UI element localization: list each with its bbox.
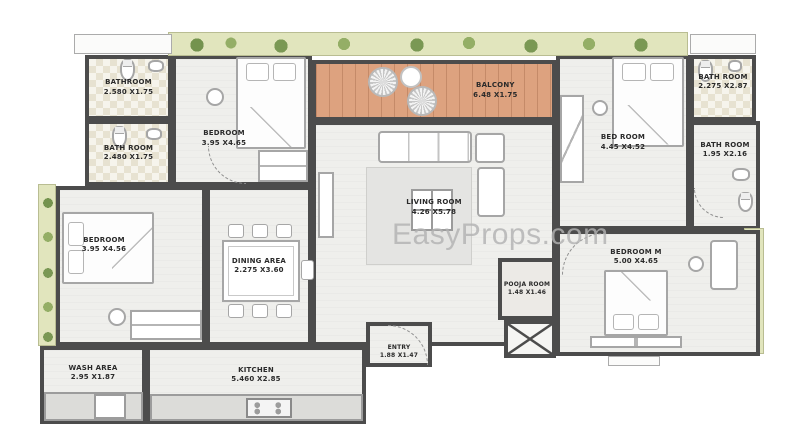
room-name: BATHROOM — [105, 78, 152, 87]
rattan-chair-icon — [368, 67, 398, 97]
room-label: BATHROOM 2.580 X1.75 — [89, 59, 168, 116]
room-balcony: BALCONY 6.48 X1.75 — [312, 60, 556, 121]
room-wash-area: WASH AREA 2.95 X1.87 — [40, 346, 146, 424]
room-name: WASH AREA — [69, 364, 118, 373]
room-label: KITCHEN 5.460 X2.85 — [150, 350, 362, 420]
ledge-bottom-right — [608, 356, 660, 366]
armchair-icon — [710, 240, 738, 290]
room-dims: 4.26 X5.78 — [412, 208, 456, 217]
room-dims: 2.580 X1.75 — [104, 88, 153, 97]
room-label: BED ROOM 4.45 X4.52 — [560, 59, 686, 226]
room-label: WASH AREA 2.95 X1.87 — [44, 350, 142, 420]
ledge-top-left — [74, 34, 172, 54]
room-dims: 2.95 X1.87 — [71, 373, 115, 382]
room-name: BALCONY — [476, 81, 515, 90]
room-dims: 3.95 X4.56 — [82, 245, 126, 254]
room-label: BATH ROOM 2.275 X2.87 — [694, 59, 752, 117]
room-label: BALCONY 6.48 X1.75 — [439, 64, 552, 117]
planter-strip-top — [168, 32, 688, 56]
room-name: BATH ROOM — [104, 144, 153, 153]
room-label: BEDROOM 3.95 X4.65 — [176, 59, 308, 182]
room-bathroom-4: BATH ROOM 1.95 X2.16 — [690, 121, 760, 230]
room-name: BATH ROOM — [700, 141, 749, 150]
room-dims: 5.00 X4.65 — [614, 257, 658, 266]
room-name: BEDROOM — [203, 129, 245, 138]
room-dims: 1.95 X2.16 — [703, 150, 747, 159]
planter-strip-left — [38, 184, 56, 346]
ledge-top-right — [690, 34, 756, 54]
room-bedroom-2: BED ROOM 4.45 X4.52 — [556, 55, 690, 230]
room-label: BEDROOM 3.95 X4.56 — [60, 190, 202, 342]
room-dining: DINING AREA 2.275 X3.60 — [206, 186, 312, 346]
bed-icon — [604, 270, 668, 336]
room-label: BATH ROOM 2.480 X1.75 — [89, 124, 168, 182]
rattan-chair-icon — [407, 86, 437, 116]
stool-icon — [688, 256, 704, 272]
room-dims: 4.45 X4.52 — [601, 143, 645, 152]
room-dims: 2.275 X3.60 — [234, 266, 283, 275]
room-name: LIVING ROOM — [406, 198, 462, 207]
room-dims: 2.275 X2.87 — [698, 82, 747, 91]
room-name: KITCHEN — [238, 366, 274, 375]
floor-plan: BATHROOM 2.580 X1.75 BATH ROOM 2.480 X1.… — [0, 0, 800, 448]
room-bathroom-2: BATH ROOM 2.480 X1.75 — [85, 120, 172, 186]
room-label: BATH ROOM 1.95 X2.16 — [694, 125, 756, 226]
watermark: EasyProps.com — [392, 218, 609, 252]
room-name: BATH ROOM — [698, 73, 747, 82]
room-dims: 3.95 X4.65 — [202, 139, 246, 148]
room-dims: 5.460 X2.85 — [231, 375, 280, 384]
room-bathroom-3: BATH ROOM 2.275 X2.87 — [690, 55, 756, 121]
room-dims: 2.480 X1.75 — [104, 153, 153, 162]
room-name: DINING AREA — [232, 257, 286, 266]
room-bedroom-1: BEDROOM 3.95 X4.65 — [172, 55, 312, 186]
room-dims: 6.48 X1.75 — [473, 91, 517, 100]
room-label: DINING AREA 2.275 X3.60 — [210, 190, 308, 342]
round-table-icon — [400, 66, 422, 88]
room-kitchen: KITCHEN 5.460 X2.85 — [146, 346, 366, 424]
room-bathroom-1: BATHROOM 2.580 X1.75 — [85, 55, 172, 120]
room-name: BEDROOM M — [610, 248, 661, 257]
bed-bench-icon — [590, 336, 682, 348]
room-bedroom-3: BEDROOM 3.95 X4.56 — [56, 186, 206, 346]
room-name: BEDROOM — [83, 236, 125, 245]
room-name: BED ROOM — [601, 133, 645, 142]
